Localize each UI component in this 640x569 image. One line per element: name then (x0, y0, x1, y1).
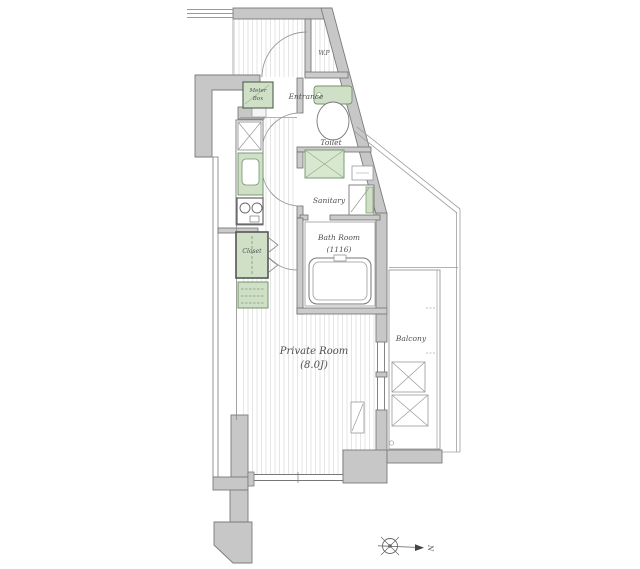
wall-bath-top-b (330, 215, 380, 220)
wall-bath-bottom (297, 308, 387, 314)
private-room-label: Private Room (279, 346, 349, 357)
wall-left-thin (213, 157, 218, 477)
room-fixture (351, 402, 364, 433)
meter-box (243, 82, 273, 108)
toilet-label: Toilet (320, 138, 342, 147)
entrance-vestibule-floor (234, 19, 305, 77)
small-label-box (252, 108, 266, 117)
wall-right-lower (376, 410, 387, 452)
wp-label: W.P (318, 50, 330, 57)
kitchen (236, 120, 263, 225)
bathtub (309, 258, 371, 304)
floor-plan: Entrance W.P Toilet Sanitary Bath Room (… (0, 0, 640, 569)
wall-bottom-left-bar (213, 477, 248, 490)
bathtub-faucet-deck (334, 255, 346, 261)
hall-floor (263, 118, 297, 233)
kitchen-sink (242, 159, 259, 185)
wall-bath-left (297, 218, 303, 314)
wall-left-thick (231, 415, 248, 477)
meter-box-label-2: Box (252, 96, 264, 102)
floor-plan-page: Entrance W.P Toilet Sanitary Bath Room (… (0, 0, 640, 569)
wall-top (233, 8, 325, 19)
wall-vestibule (305, 19, 311, 77)
private-room-size-label: (8.0J) (300, 360, 328, 371)
wall-bottom-right (343, 450, 387, 483)
north-label: N (426, 544, 434, 552)
wall-balcony-bottom (387, 450, 442, 463)
bath-room-label: Bath Room (317, 233, 360, 242)
meter-box-label-1: Meter (249, 88, 267, 94)
window-cap (248, 472, 254, 486)
shelf-box (238, 282, 268, 308)
closet-label: Closet (242, 248, 262, 255)
meter-box-body (243, 82, 273, 108)
wall-sanitary-left-a (297, 152, 303, 168)
entrance-label: Entrance (288, 92, 324, 101)
wall-bottom-left-column (230, 490, 248, 522)
balcony-label: Balcony (395, 334, 427, 343)
wall-wp-bottom (305, 72, 348, 78)
wall-right-upper (376, 213, 387, 342)
sanitary-label: Sanitary (313, 196, 346, 205)
bath-room-size-label: (1116) (327, 245, 352, 254)
toilet-bowl (317, 102, 349, 140)
wall-window-mullion (376, 372, 387, 377)
